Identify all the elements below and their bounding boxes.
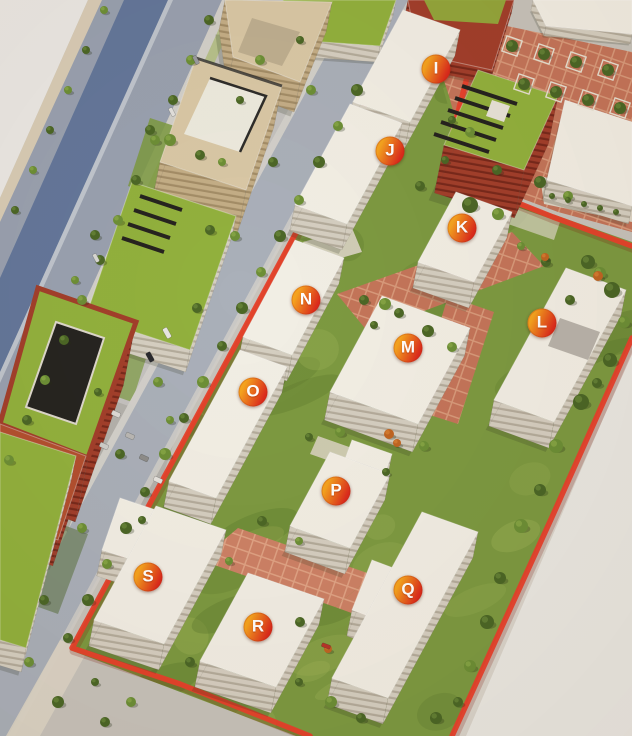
building-marker-label: S: [142, 568, 153, 585]
building-marker-p[interactable]: P: [322, 477, 351, 506]
building-marker-label: L: [537, 314, 547, 331]
building-marker-label: O: [246, 383, 259, 400]
building-marker-label: Q: [401, 581, 414, 598]
building-marker-q[interactable]: Q: [394, 576, 423, 605]
building-marker-r[interactable]: R: [244, 613, 273, 642]
building-marker-j[interactable]: J: [376, 137, 405, 166]
building-marker-label: P: [330, 482, 341, 499]
building-marker-o[interactable]: O: [239, 378, 268, 407]
building-marker-l[interactable]: L: [528, 309, 557, 338]
building-marker-s[interactable]: S: [134, 563, 163, 592]
site-model-photo: I J K L M N O P Q R S: [0, 0, 632, 736]
building-marker-label: J: [385, 142, 394, 159]
building-marker-i[interactable]: I: [422, 55, 451, 84]
building-marker-k[interactable]: K: [448, 214, 477, 243]
building-marker-label: I: [434, 60, 439, 77]
building-marker-label: M: [401, 339, 415, 356]
building-marker-n[interactable]: N: [292, 286, 321, 315]
building-marker-label: K: [456, 219, 468, 236]
building-marker-label: R: [252, 618, 264, 635]
building-marker-m[interactable]: M: [394, 334, 423, 363]
building-markers-layer: I J K L M N O P Q R S: [0, 0, 632, 736]
building-marker-label: N: [300, 291, 312, 308]
